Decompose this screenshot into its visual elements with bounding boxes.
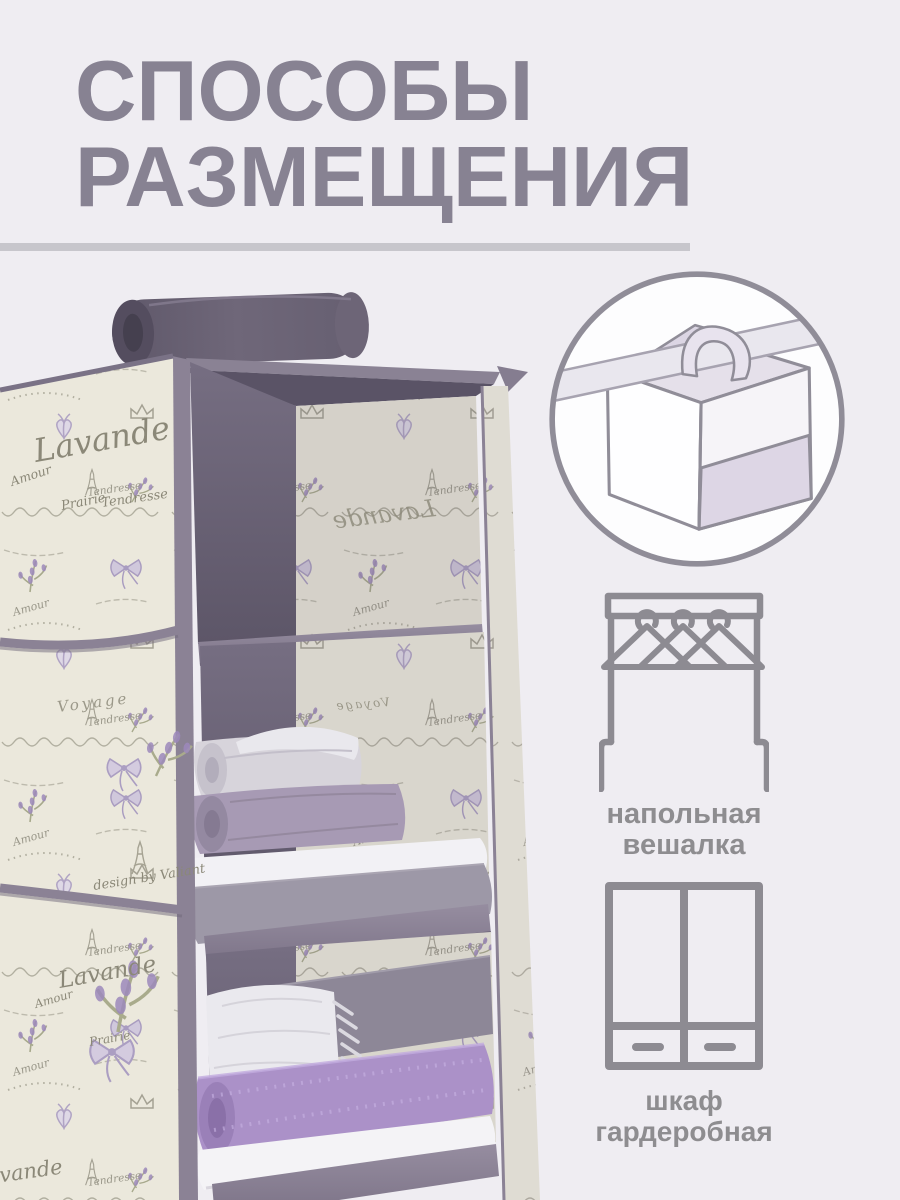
handle-loop: [111, 292, 370, 367]
rack-base: [601, 742, 767, 789]
method-wardrobe: шкафгардеробная: [554, 881, 814, 1147]
wardrobe-label: шкафгардеробная: [554, 1085, 814, 1147]
product-photo: Amour Tendresse: [0, 290, 540, 1200]
product-infographic: СПОСОБЫРАЗМЕЩЕНИЯ: [0, 0, 900, 1200]
wardrobe-icon: [604, 881, 764, 1071]
rod-hanging-illustration: [544, 266, 850, 572]
floor-hanger-label: напольнаявешалка: [554, 799, 814, 861]
closet-rod-diagram: [544, 266, 850, 572]
floor-hanger-icon: [599, 592, 769, 792]
hangers: [604, 612, 762, 667]
rack-legs: [611, 616, 757, 742]
page-title: СПОСОБЫРАЗМЕЩЕНИЯ: [75, 49, 693, 221]
title-underline: [0, 243, 690, 251]
title-line-2: РАЗМЕЩЕНИЯ: [75, 130, 693, 225]
method-floor-hanger: напольнаявешалка: [554, 592, 814, 861]
hanging-organizer-image: Amour Tendresse: [0, 290, 540, 1200]
title-line-1: СПОСОБЫ: [75, 44, 533, 139]
compartment-1: Lavande: [190, 362, 482, 644]
